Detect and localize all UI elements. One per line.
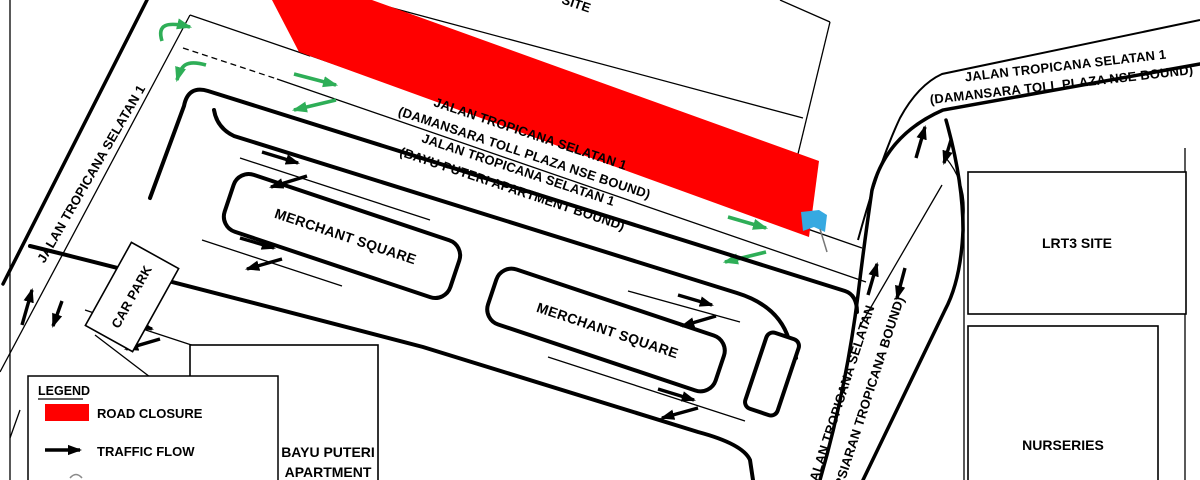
green-flow-right-arrow-1 <box>294 74 336 85</box>
flow-arrow-up <box>868 264 877 295</box>
traffic-arrow-up <box>22 290 32 325</box>
lrt3-site-label: LRT3 SITE <box>1042 235 1112 251</box>
top-right-road-labels: JALAN TROPICANA SELATAN 1 (DAMANSARA TOL… <box>929 47 1194 107</box>
green-flow-left-arrow-1 <box>294 100 336 110</box>
flow-arrow <box>678 295 712 305</box>
nurseries-box <box>968 326 1158 480</box>
legend: LEGEND ROAD CLOSURE TRAFFIC FLOW <box>28 376 278 480</box>
map-canvas: SITE JALAN TROPICANA SELATAN 1 JALAN TRO… <box>0 0 1200 480</box>
flow-arrow <box>662 408 698 418</box>
legend-road-closure-swatch <box>45 404 89 421</box>
nurseries-label: NURSERIES <box>1022 437 1104 453</box>
legend-title: LEGEND <box>38 384 90 398</box>
legend-traffic-flow-label: TRAFFIC FLOW <box>97 444 195 459</box>
traffic-diversion-map: SITE JALAN TROPICANA SELATAN 1 JALAN TRO… <box>0 0 1200 480</box>
green-turn-right-arrow <box>161 24 190 41</box>
site-partial-label: SITE <box>560 0 593 16</box>
green-turn-down-arrow <box>177 63 206 80</box>
flow-arrow-up <box>916 127 925 158</box>
bayu-puteri-label-line1: BAYU PUTERI <box>281 444 375 460</box>
legend-road-closure-label: ROAD CLOSURE <box>97 406 203 421</box>
flow-arrow <box>682 316 716 326</box>
road-stub <box>743 331 801 418</box>
flow-arrow-down <box>897 268 905 298</box>
traffic-arrow-down <box>53 301 62 326</box>
bayu-puteri-label-line2: APARTMENT <box>285 464 372 480</box>
